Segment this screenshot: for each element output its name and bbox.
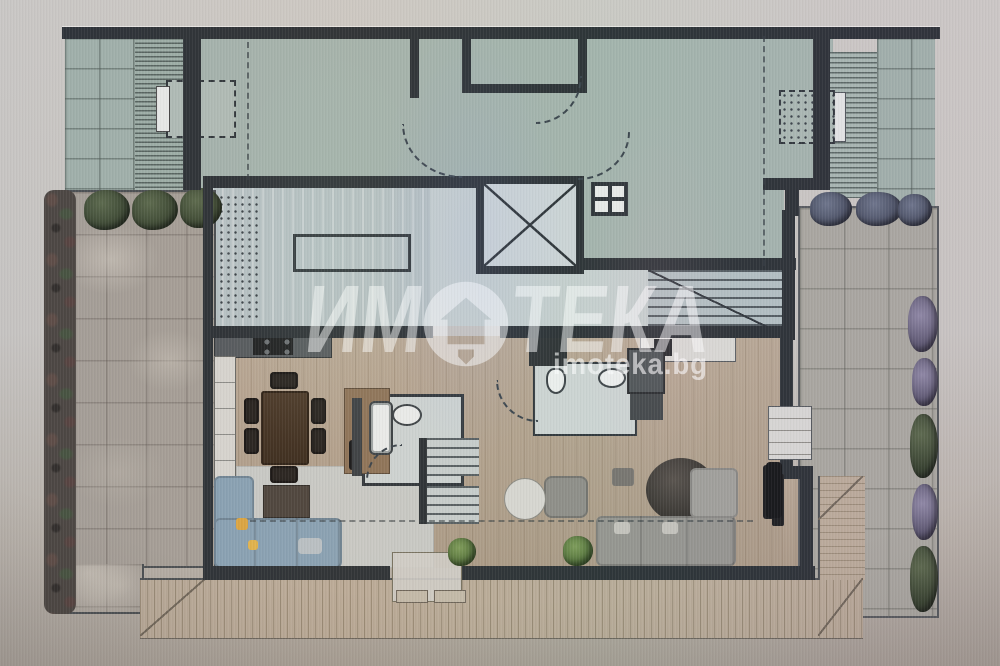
stone-terrace-left-ext xyxy=(64,564,144,614)
watermark-domain: imoteka.bg xyxy=(553,348,708,382)
wall-bottom xyxy=(203,566,390,580)
deck-miter-joint xyxy=(818,476,863,520)
wall-segment-right xyxy=(813,28,830,190)
dining-chair xyxy=(311,398,326,424)
wall-left-main xyxy=(203,188,213,578)
skylight-dashed-left xyxy=(166,80,236,138)
coffee-table xyxy=(263,485,310,518)
pillow-gray xyxy=(298,538,322,554)
terrace-door-steps xyxy=(768,406,812,460)
stair-wall xyxy=(419,438,427,524)
wall-right-lower xyxy=(800,476,813,580)
window-pane xyxy=(612,201,625,212)
side-table xyxy=(612,468,634,486)
wall-segment xyxy=(183,38,201,190)
bush xyxy=(908,296,938,352)
armchair xyxy=(544,476,588,518)
dining-chair xyxy=(311,428,326,454)
washbasin xyxy=(392,404,422,426)
hatched-zone xyxy=(218,194,258,322)
roof-terrace-right-pavers xyxy=(877,38,935,206)
stone-terrace-left xyxy=(64,190,216,568)
dining-chair xyxy=(270,466,298,483)
sofa-gray-corner xyxy=(690,468,738,518)
wood-deck-bottom xyxy=(140,578,863,639)
dining-chair xyxy=(244,398,259,424)
sofa-blue xyxy=(214,518,342,568)
step-stone xyxy=(434,590,466,603)
watermark-brand-left: ИМ xyxy=(281,276,429,364)
pillow-yellow xyxy=(236,518,248,530)
plant-column-right xyxy=(906,296,940,614)
roof-terrace-left-pavers xyxy=(65,38,135,190)
wall-segment xyxy=(782,210,795,340)
pillow-light xyxy=(662,522,678,534)
wall-bottom xyxy=(462,566,815,580)
dining-chair xyxy=(270,372,298,389)
round-side-table xyxy=(504,478,546,520)
bush xyxy=(912,484,938,540)
bush xyxy=(910,546,938,612)
window-pane xyxy=(595,186,608,197)
kitchen-cabinets xyxy=(214,356,236,486)
roof-edge-dashed-line xyxy=(247,42,249,180)
window-pane xyxy=(595,201,608,212)
deck-miter-joint xyxy=(818,578,863,636)
floor-plan-photo: ИМ ТЕКА imoteka.bg xyxy=(0,0,1000,666)
roof-edge-dashed-line xyxy=(763,36,765,266)
wall-segment-mid xyxy=(203,176,478,188)
interior-staircase-lower-flight xyxy=(427,486,479,524)
window-symbol xyxy=(591,182,628,216)
roof-slope-dashed-line xyxy=(250,520,753,522)
wardrobe-strip xyxy=(352,398,362,476)
elevator-shaft xyxy=(476,176,584,274)
wall-segment xyxy=(410,38,419,98)
hedge-left xyxy=(44,190,76,614)
dining-chair xyxy=(244,428,259,454)
elevator-x-icon xyxy=(476,176,584,274)
pillow-yellow xyxy=(248,540,258,550)
dining-table xyxy=(261,391,309,465)
sink-column xyxy=(630,392,663,420)
step-stone xyxy=(396,590,428,603)
grill-object xyxy=(766,462,782,518)
window-strip xyxy=(156,86,170,132)
bush xyxy=(910,414,938,478)
pillow-light xyxy=(614,522,630,534)
imoteka-house-logo-icon xyxy=(422,280,510,368)
bush xyxy=(912,358,938,406)
interior-staircase-lower-flight xyxy=(427,438,479,476)
window-pane xyxy=(612,186,625,197)
deck-miter-joint xyxy=(140,578,206,636)
